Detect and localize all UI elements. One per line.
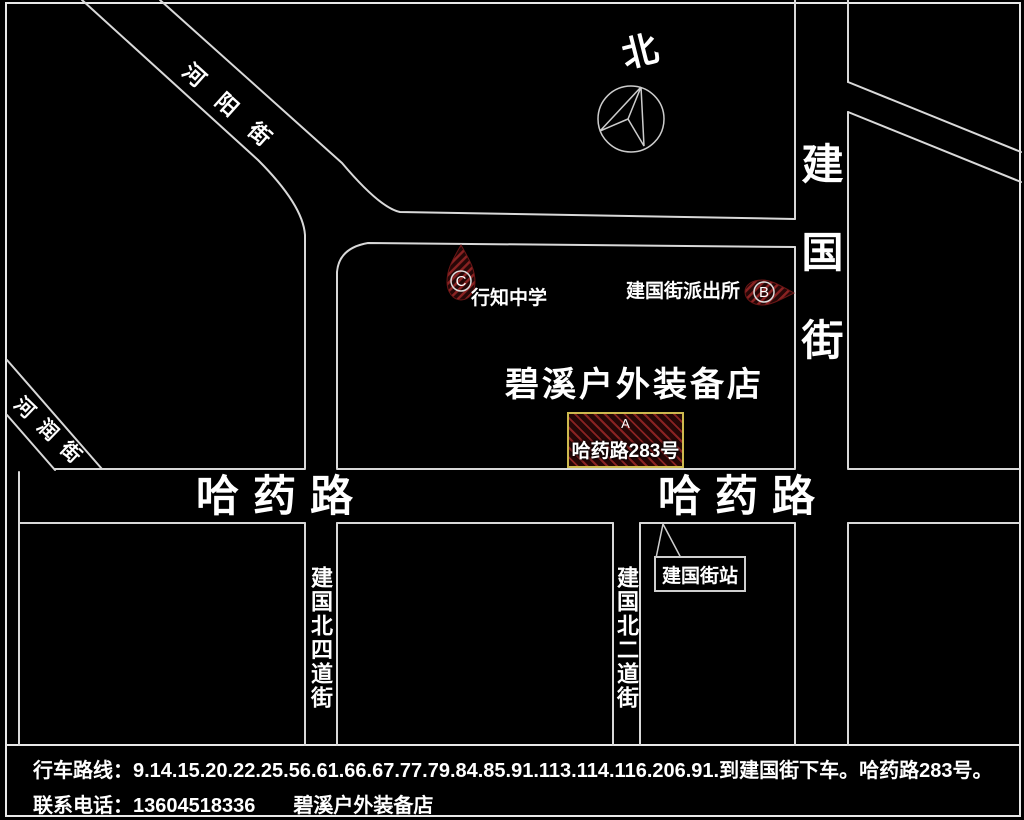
footer-phone: 13604518336 — [133, 795, 255, 817]
footer-route-line: 行车路线：9.14.15.20.22.25.56.61.66.67.77.79.… — [33, 754, 992, 783]
street-label-jianguo-n2: 建国北二道街 — [615, 566, 637, 710]
road-network-drawing — [0, 0, 1024, 820]
footer-contact-line: 联系电话：13604518336碧溪户外装备店 — [33, 789, 433, 818]
bus-stop-label: 建国街站 — [662, 561, 738, 588]
road-eastwest-bottom-edge — [337, 243, 795, 468]
marker-c-letter: C — [451, 273, 471, 290]
marker-b-letter: B — [754, 284, 774, 301]
road-heyang-upper-edge — [160, 0, 795, 219]
street-label-hayao-left: 哈药路 — [196, 476, 367, 519]
poi-label-police-station: 建国街派出所 — [626, 282, 740, 301]
map-flyer: { "map": { "compass_label": "北", "street… — [0, 0, 1024, 820]
poi-label-xingzhi-school: 行知中学 — [471, 289, 547, 308]
map-canvas: 北 河阳街 河润街 建国街 哈药路 哈药路 建国北四道街 建国北二道街 C 行知… — [0, 0, 1024, 820]
road-ne-diagonal — [848, 82, 1021, 182]
map-frame — [6, 3, 1020, 816]
marker-a-letter: A — [621, 416, 630, 431]
compass-icon — [598, 86, 664, 152]
footer-store-name: 碧溪户外装备店 — [293, 795, 433, 817]
street-label-hayao-right: 哈药路 — [658, 476, 829, 519]
footer-contact-label: 联系电话： — [33, 795, 133, 817]
street-label-jianguo-n4: 建国北四道街 — [309, 566, 331, 710]
bus-stop-pointer-icon — [656, 524, 681, 558]
street-label-jianguo: 建国街 — [798, 142, 840, 406]
store-title: 碧溪户外装备店 — [505, 368, 764, 402]
marker-a-address: 哈药路283号 — [572, 436, 680, 463]
marker-a-address-box: A 哈药路283号 — [567, 412, 684, 468]
bus-stop-callout: 建国街站 — [654, 556, 746, 592]
